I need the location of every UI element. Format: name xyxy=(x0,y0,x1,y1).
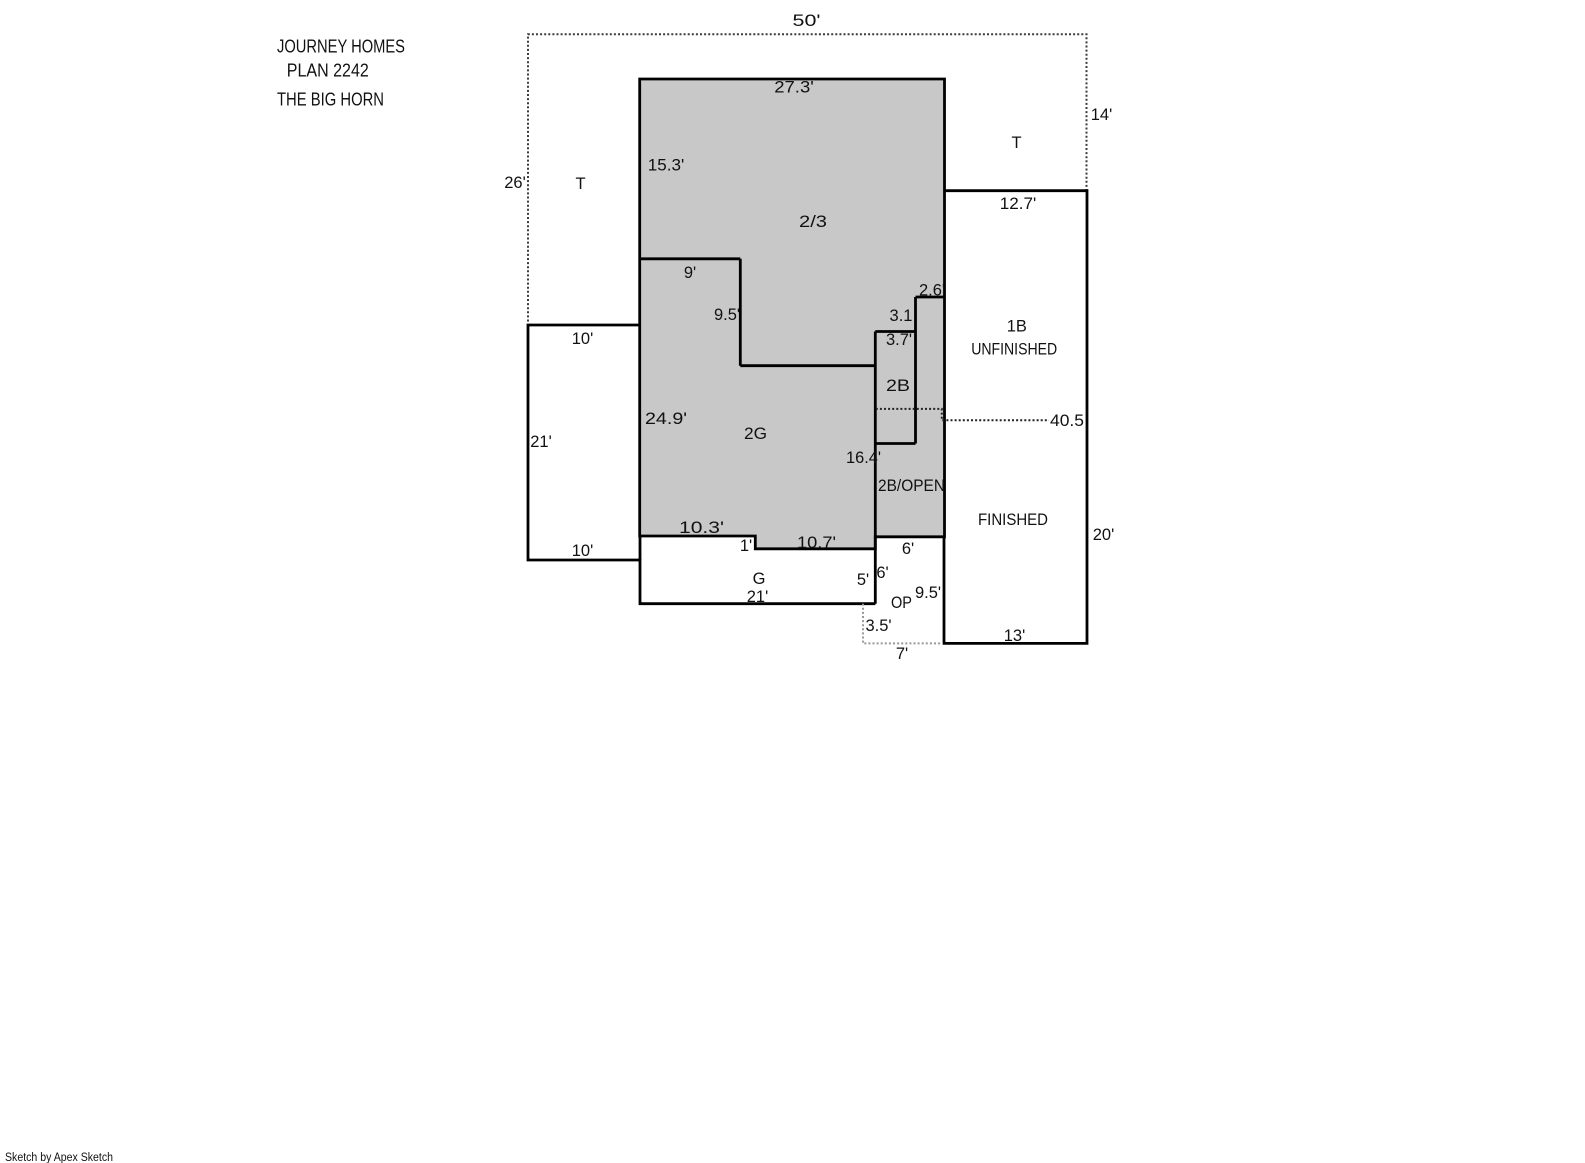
svg-text:6': 6' xyxy=(876,564,888,582)
svg-text:3.1: 3.1 xyxy=(890,307,913,325)
svg-text:PLAN 2242: PLAN 2242 xyxy=(287,61,369,81)
svg-text:14': 14' xyxy=(1091,106,1113,124)
svg-text:10.3': 10.3' xyxy=(679,519,724,537)
svg-text:JOURNEY HOMES: JOURNEY HOMES xyxy=(277,37,405,57)
svg-text:2B: 2B xyxy=(886,377,910,395)
svg-text:3.5': 3.5' xyxy=(865,617,891,635)
svg-text:7': 7' xyxy=(896,645,908,663)
svg-text:G: G xyxy=(753,570,766,588)
svg-text:FINISHED: FINISHED xyxy=(978,511,1048,529)
svg-text:26': 26' xyxy=(504,174,526,192)
svg-text:2B/OPEN: 2B/OPEN xyxy=(878,477,945,495)
svg-text:1': 1' xyxy=(740,537,752,555)
svg-text:Sketch by Apex Sketch: Sketch by Apex Sketch xyxy=(5,1152,113,1163)
svg-text:6': 6' xyxy=(902,540,914,558)
svg-text:12.7': 12.7' xyxy=(1000,195,1037,213)
svg-text:2/3: 2/3 xyxy=(799,213,827,231)
svg-text:16.4': 16.4' xyxy=(846,449,881,467)
svg-text:50': 50' xyxy=(793,12,821,30)
svg-text:9.5': 9.5' xyxy=(915,584,941,602)
svg-text:21': 21' xyxy=(530,433,552,451)
svg-text:40.5: 40.5 xyxy=(1050,412,1084,430)
svg-text:24.9': 24.9' xyxy=(645,410,687,428)
svg-text:T: T xyxy=(575,175,585,193)
svg-text:10': 10' xyxy=(572,330,594,348)
svg-text:UNFINISHED: UNFINISHED xyxy=(971,341,1057,359)
svg-text:3.7': 3.7' xyxy=(886,331,912,349)
svg-text:9.5': 9.5' xyxy=(714,306,740,324)
svg-text:27.3': 27.3' xyxy=(774,79,814,97)
svg-text:20': 20' xyxy=(1093,526,1115,544)
svg-text:THE BIG HORN: THE BIG HORN xyxy=(277,90,384,110)
svg-text:10.7': 10.7' xyxy=(797,534,836,552)
svg-text:21': 21' xyxy=(747,588,769,606)
svg-text:9': 9' xyxy=(684,264,696,282)
svg-text:T: T xyxy=(1011,134,1021,152)
svg-text:13': 13' xyxy=(1004,627,1026,645)
svg-text:1B: 1B xyxy=(1007,318,1027,336)
svg-text:2.6': 2.6' xyxy=(919,282,945,300)
svg-text:5': 5' xyxy=(857,571,869,589)
svg-text:OP: OP xyxy=(891,594,912,612)
svg-text:10': 10' xyxy=(572,542,594,560)
svg-text:15.3': 15.3' xyxy=(648,157,685,175)
svg-text:2G: 2G xyxy=(744,425,767,443)
